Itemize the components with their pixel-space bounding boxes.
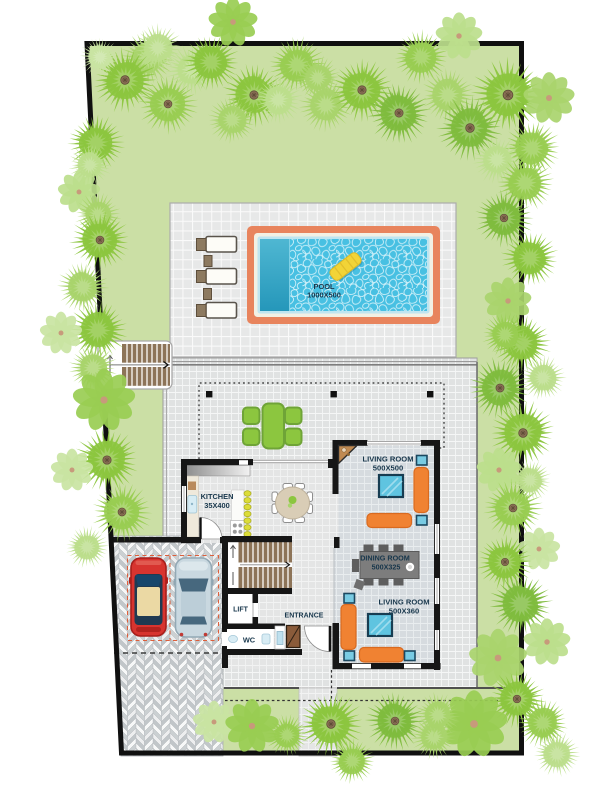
svg-text:LIVING ROOM: LIVING ROOM [362,455,413,464]
svg-text:35X400: 35X400 [204,501,229,510]
svg-text:1000X500: 1000X500 [307,291,341,300]
svg-text:ENTRANCE: ENTRANCE [285,613,324,620]
svg-text:WC: WC [243,636,256,645]
svg-text:LIFT: LIFT [233,607,248,614]
svg-text:500X360: 500X360 [389,607,419,616]
svg-text:500X500: 500X500 [373,464,403,473]
svg-text:KITCHEN: KITCHEN [201,492,234,501]
svg-text:DINING ROOM: DINING ROOM [360,554,410,563]
svg-text:500X325: 500X325 [372,563,401,572]
svg-text:LIVING ROOM: LIVING ROOM [378,598,429,607]
